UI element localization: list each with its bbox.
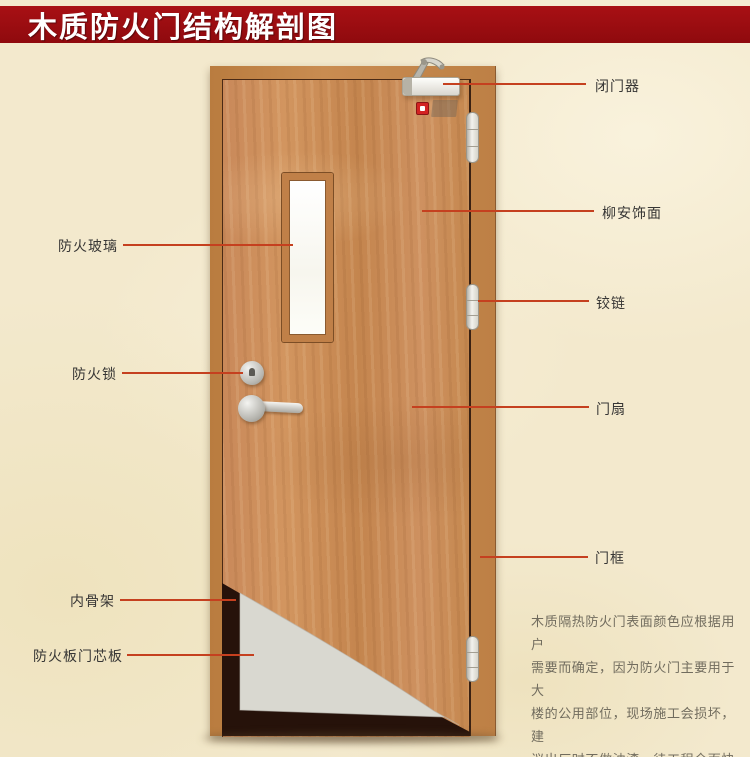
title-banner: 木质防火门结构解剖图 <box>0 6 750 43</box>
page-title: 木质防火门结构解剖图 <box>0 4 338 46</box>
leader-line-fire-glass <box>123 244 293 246</box>
label-door-leaf: 门扇 <box>596 399 626 419</box>
label-hinge: 铰链 <box>596 293 626 313</box>
label-door-closer: 闭门器 <box>595 76 640 96</box>
leader-line-hinge <box>478 300 589 302</box>
leader-line-lauan-veneer <box>422 210 594 212</box>
leader-line-door-leaf <box>412 406 589 408</box>
label-fire-glass: 防火玻璃 <box>58 236 118 256</box>
label-core-board: 防火板门芯板 <box>33 646 123 666</box>
label-fire-lock: 防火锁 <box>72 364 117 384</box>
door-assembly <box>210 66 496 736</box>
label-inner-frame: 内骨架 <box>70 591 115 611</box>
leader-line-door-frame <box>480 556 588 558</box>
leader-line-inner-frame <box>120 599 236 601</box>
leader-line-core-board <box>127 654 254 656</box>
label-lauan-veneer: 柳安饰面 <box>602 203 662 223</box>
door-shadow <box>202 733 502 743</box>
diagram-canvas: 木质防火门结构解剖图 <box>0 0 750 757</box>
leader-line-door-closer <box>443 83 586 85</box>
leader-line-fire-lock <box>122 372 243 374</box>
product-note: 木质隔热防火门表面颜色应根据用户 需要而确定，因为防火门主要用于大 楼的公用部位… <box>531 610 743 757</box>
cutaway-section <box>210 66 495 736</box>
label-door-frame: 门框 <box>595 548 625 568</box>
